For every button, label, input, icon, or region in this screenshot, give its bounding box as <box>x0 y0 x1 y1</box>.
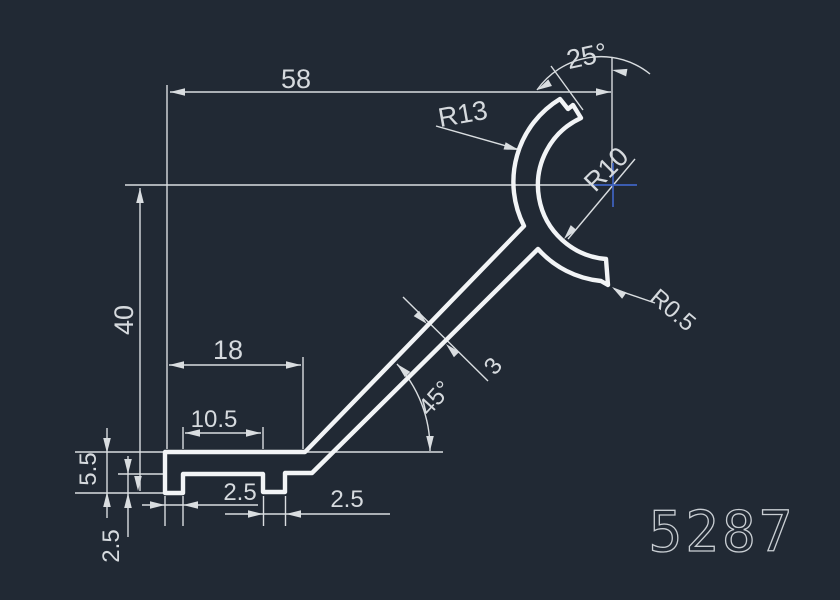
dim-18-label: 18 <box>213 335 243 365</box>
part-number: 5287 <box>649 500 796 565</box>
dim-105-label: 10.5 <box>191 406 238 433</box>
cad-viewport: 58 40 18 10.5 5.5 2.5 2.5 2.5 3 45° 25° … <box>0 0 840 600</box>
dim-25b-label: 2.5 <box>330 486 363 513</box>
cad-canvas: 58 40 18 10.5 5.5 2.5 2.5 2.5 3 45° 25° … <box>0 0 840 600</box>
dim-58-label: 58 <box>281 64 311 94</box>
dim-25a-label: 2.5 <box>223 479 256 506</box>
dim-25-left-label: 2.5 <box>98 529 125 562</box>
dim-40-label: 40 <box>109 305 139 335</box>
dim-55-label: 5.5 <box>75 452 102 485</box>
